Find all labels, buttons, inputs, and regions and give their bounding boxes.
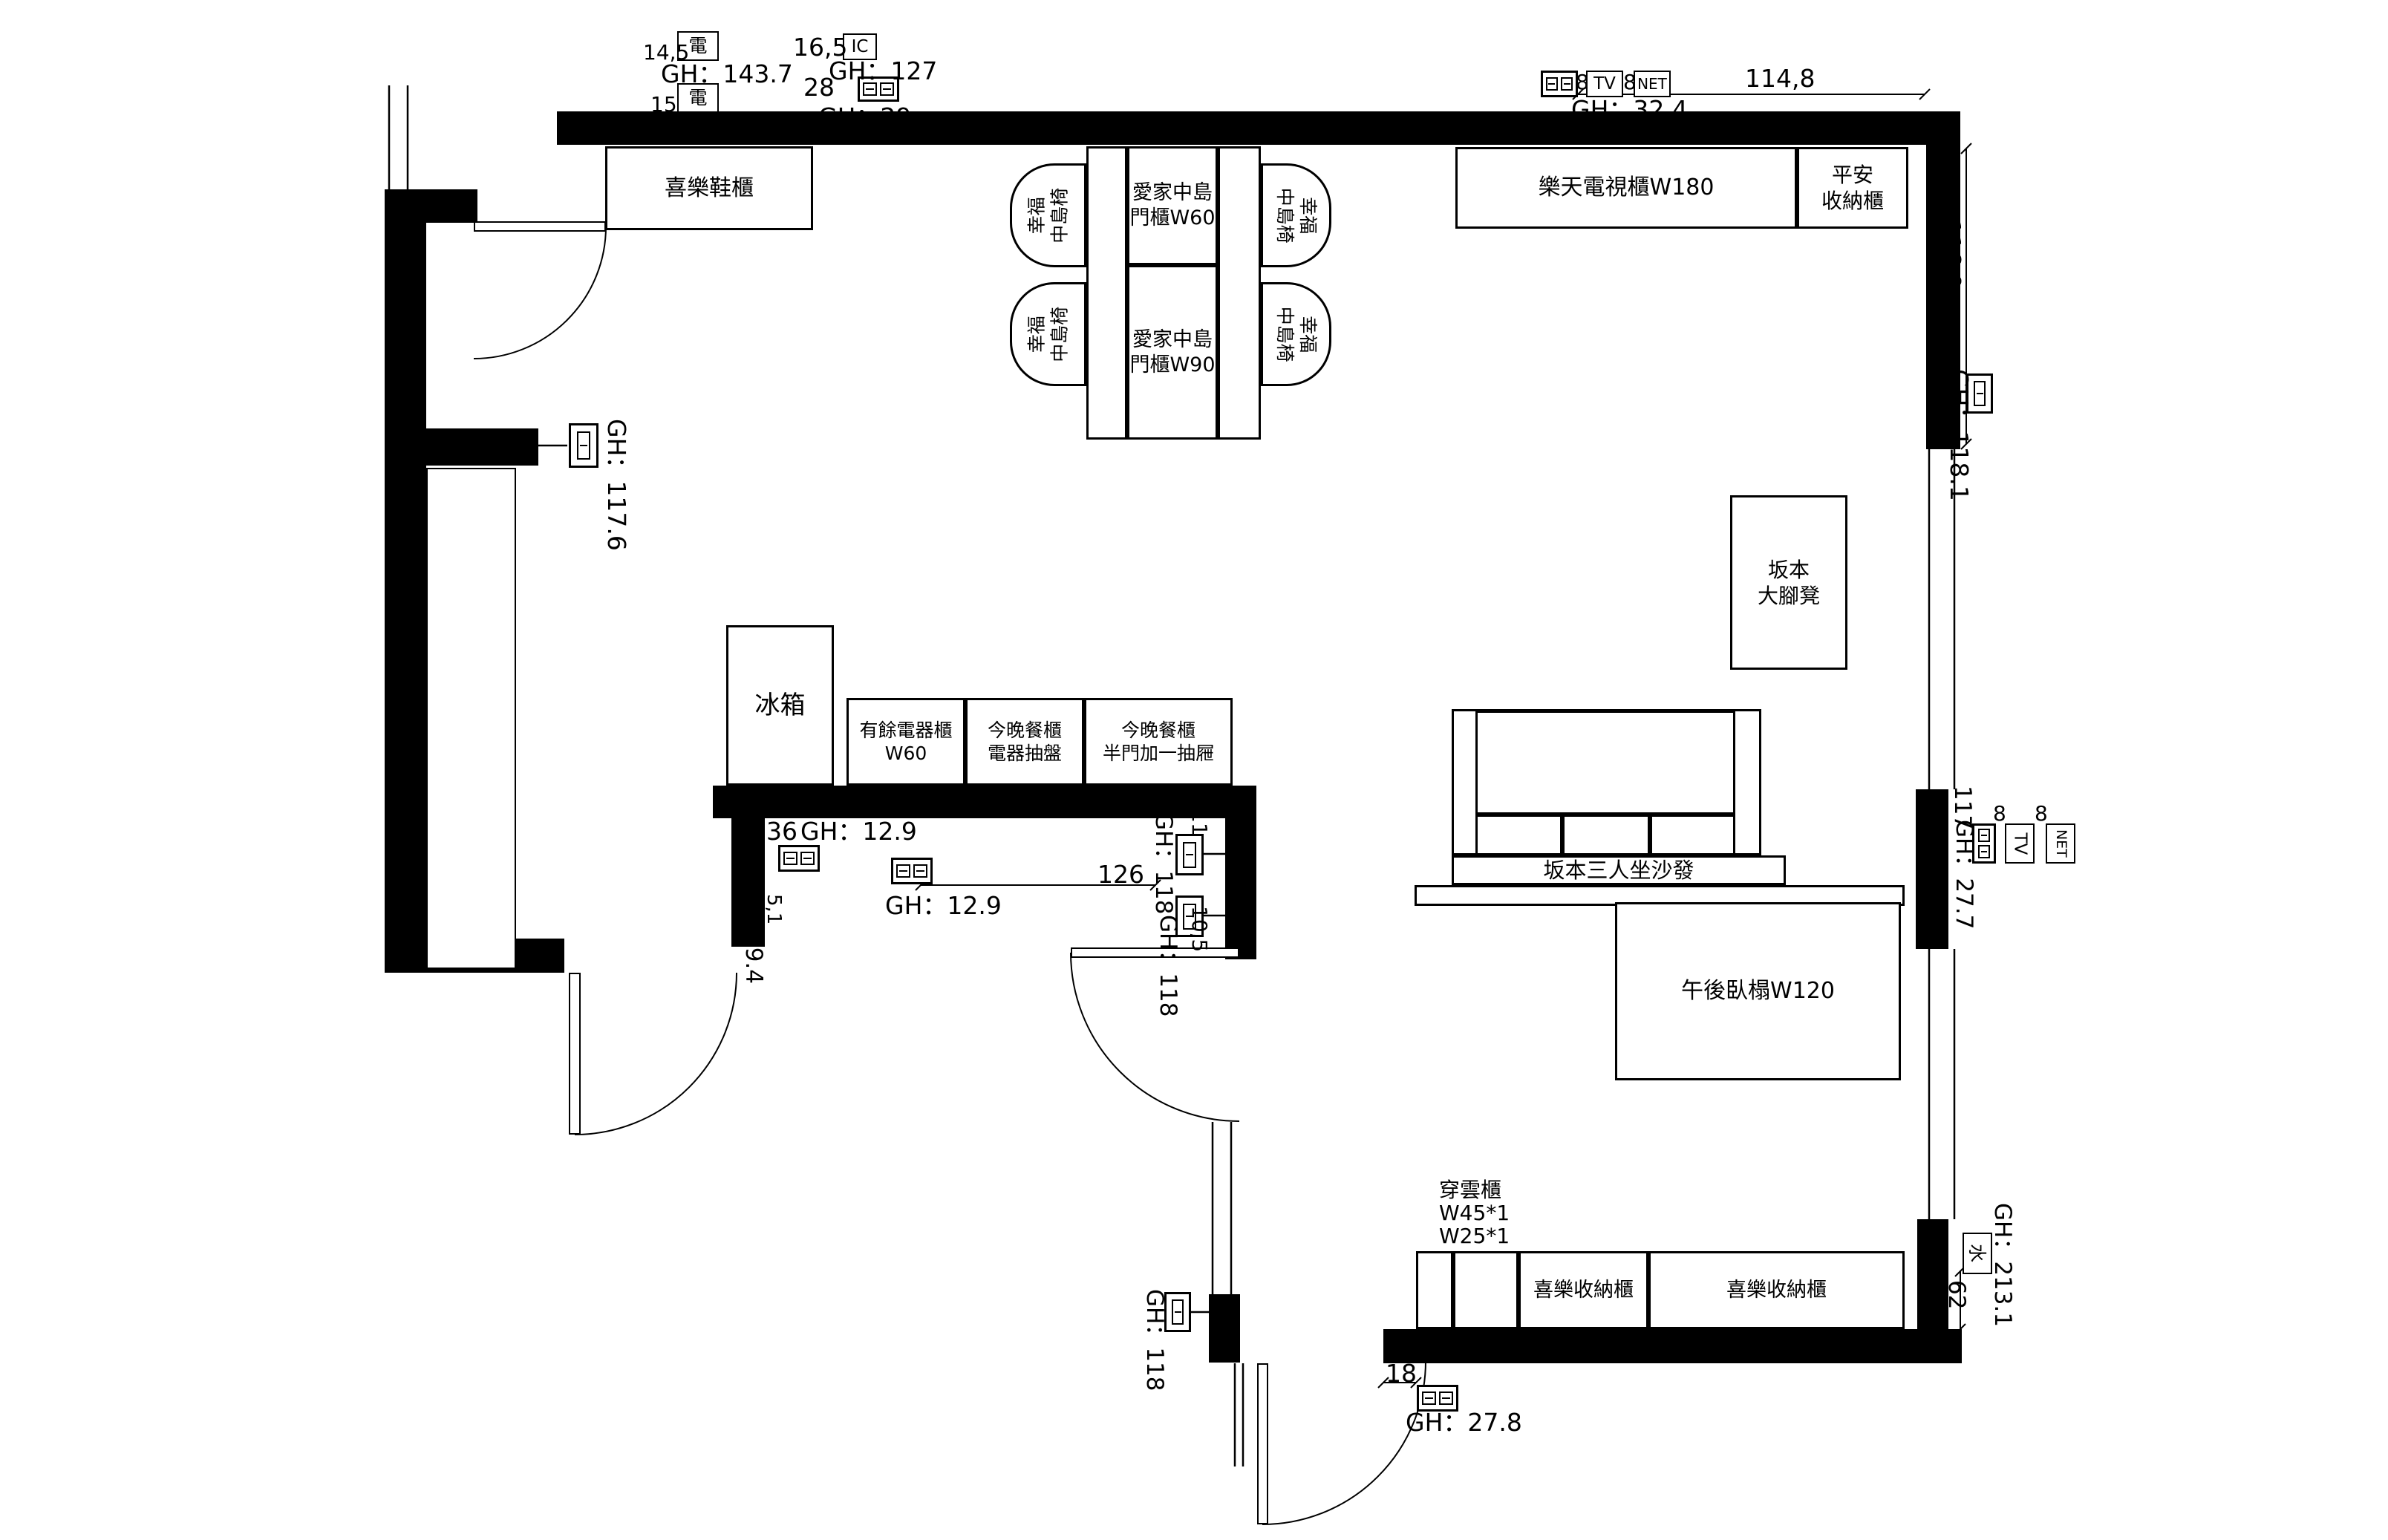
storage-cabinet-2-label: 喜樂收納櫃 bbox=[1726, 1278, 1827, 1303]
label-gh-117-6: GH：117.6 bbox=[603, 419, 630, 551]
wall-mid-pier bbox=[1225, 818, 1256, 959]
electric-box-2-label: 電 bbox=[688, 86, 707, 109]
daybed-label: 午後臥榻W120 bbox=[1681, 977, 1835, 1005]
label-gh-12-9b: GH：12.9 bbox=[885, 893, 1002, 919]
wall-bottom bbox=[1383, 1329, 1962, 1363]
socket-cell bbox=[1422, 1391, 1436, 1406]
socket-126-icon bbox=[891, 858, 933, 884]
net-outlet-box-top-label: NET bbox=[1637, 75, 1667, 94]
door-swing-arc-entry bbox=[474, 226, 606, 359]
island-cabinet-w60: 愛家中島 門櫃W60 bbox=[1127, 146, 1218, 265]
tv-cabinet-label: 樂天電視櫃W180 bbox=[1539, 174, 1715, 202]
tv-outlet-box-top: TV bbox=[1586, 71, 1623, 97]
socket-36-icon bbox=[778, 845, 820, 872]
socket-cell bbox=[1183, 842, 1196, 868]
socket-cell-bar bbox=[1564, 83, 1570, 85]
footstool-label: 坂本 大腳凳 bbox=[1758, 557, 1820, 609]
door-leaf-bottom bbox=[1257, 1363, 1268, 1524]
socket-cell-bar bbox=[1442, 1397, 1450, 1399]
socket-cell-bar bbox=[803, 858, 812, 859]
label-gh-118-a: GH：118 bbox=[1151, 812, 1176, 915]
tv-outlet-box-right-label: TV bbox=[2009, 832, 2031, 855]
label-gh-118-1: GH：118.1 bbox=[1945, 369, 1972, 501]
net-outlet-box-right-label: NET bbox=[2052, 829, 2069, 858]
label-gh-37-7: GH：37.7 bbox=[663, 113, 780, 140]
sofa-seat-2 bbox=[1562, 815, 1650, 855]
island-chair-left-top: 幸福 中島椅 bbox=[1010, 163, 1086, 267]
electric-box-1-label: 電 bbox=[688, 34, 707, 57]
dim-114-8: 114,8 bbox=[1745, 65, 1815, 92]
socket-cell-bar bbox=[1175, 1311, 1181, 1313]
dim-8b: 8 bbox=[1623, 71, 1637, 94]
bottom-cabinet-cell-1 bbox=[1416, 1251, 1453, 1329]
socket-top-right-icon bbox=[1541, 71, 1578, 97]
dim-8c: 8 bbox=[1993, 803, 2006, 826]
label-chuanyun-cabinet: 穿雲櫃 W45*1 W25*1 bbox=[1439, 1179, 1510, 1247]
island-cabinet-w90: 愛家中島 門櫃W90 bbox=[1127, 265, 1218, 440]
label-gh-143-7: GH：143.7 bbox=[661, 61, 793, 88]
island-cabinet-w60-label: 愛家中島 門櫃W60 bbox=[1129, 180, 1215, 231]
water-box: 水 bbox=[1963, 1233, 1992, 1274]
socket-cell-bar bbox=[580, 445, 588, 446]
socket-cell-bar bbox=[899, 870, 907, 872]
kitchen-cabinet-w60: 有餘電器櫃 W60 bbox=[846, 698, 965, 786]
wall-left-stub bbox=[385, 428, 538, 466]
island-chair-left-bottom: 幸福 中島椅 bbox=[1010, 282, 1086, 386]
ic-box-label: IC bbox=[852, 36, 869, 58]
dim-5-1: 5,1 bbox=[763, 894, 784, 924]
socket-cell-bar bbox=[1186, 854, 1193, 855]
socket-bottom-118-icon bbox=[1164, 1292, 1191, 1332]
shoe-cabinet-label: 喜樂鞋櫃 bbox=[665, 174, 754, 203]
socket-cell-bar bbox=[1425, 1397, 1433, 1399]
island-cabinet-w90-label: 愛家中島 門櫃W90 bbox=[1129, 327, 1215, 378]
socket-cell bbox=[896, 864, 910, 878]
label-gh-118-c: GH：118 bbox=[1142, 1289, 1167, 1391]
door-leaf-bottom-left bbox=[569, 973, 581, 1135]
footstool: 坂本 大腳凳 bbox=[1730, 495, 1847, 670]
storage-cabinet-1-label: 喜樂收納櫃 bbox=[1533, 1278, 1634, 1303]
island-chair-right-bottom-label: 幸福 中島椅 bbox=[1273, 306, 1319, 362]
sofa-backrest bbox=[1475, 711, 1735, 815]
storage-cabinet-2: 喜樂收納櫃 bbox=[1648, 1251, 1905, 1329]
socket-cell-bar bbox=[916, 870, 924, 872]
shoe-cabinet: 喜樂鞋櫃 bbox=[605, 146, 813, 230]
label-gh-213-1: GH：213.1 bbox=[1990, 1203, 2015, 1327]
net-outlet-box-top: NET bbox=[1634, 71, 1671, 97]
label-gh-29: GH：29 bbox=[818, 104, 911, 131]
tv-outlet-box-right: TV bbox=[2005, 823, 2035, 864]
island-chair-left-bottom-label: 幸福 中島椅 bbox=[1025, 306, 1071, 362]
water-box-label: 水 bbox=[1965, 1244, 1989, 1262]
wall-right-mid-pier bbox=[1916, 789, 1948, 949]
door-leaf-entry bbox=[474, 221, 606, 232]
socket-cell bbox=[1561, 77, 1573, 91]
closet bbox=[426, 468, 516, 969]
socket-cell-bar bbox=[883, 88, 891, 90]
dim-116-9: 116,9 bbox=[1938, 219, 1965, 289]
island-column-right bbox=[1218, 146, 1261, 440]
bottom-cabinet-cell-2 bbox=[1453, 1251, 1518, 1329]
storage-cabinet-1: 喜樂收納櫃 bbox=[1518, 1251, 1648, 1329]
fridge: 冰箱 bbox=[726, 625, 834, 786]
socket-cell-bar bbox=[1977, 393, 1983, 394]
socket-cell bbox=[1978, 845, 1990, 858]
socket-cell bbox=[913, 864, 927, 878]
label-gh-127: GH：127 bbox=[829, 58, 937, 85]
socket-cell bbox=[1974, 381, 1986, 406]
socket-cell-bar bbox=[1981, 835, 1988, 836]
socket-cell-bar bbox=[1981, 851, 1988, 852]
fridge-label: 冰箱 bbox=[755, 690, 806, 722]
dim-28: 28 bbox=[803, 74, 835, 101]
kitchen-cabinet-halfdoor-label: 今晚餐櫃 半門加一抽屜 bbox=[1103, 719, 1214, 766]
label-gh-27-8: GH：27.8 bbox=[1406, 1409, 1522, 1436]
socket-cell bbox=[783, 852, 797, 866]
socket-cell bbox=[800, 852, 815, 866]
kitchen-cabinet-halfdoor: 今晚餐櫃 半門加一抽屜 bbox=[1084, 698, 1233, 786]
dim-36: 36 bbox=[766, 818, 797, 845]
tv-cabinet: 樂天電視櫃W180 bbox=[1455, 147, 1797, 229]
pingan-storage-cabinet: 平安 收納櫃 bbox=[1797, 147, 1908, 229]
socket-left-117-icon bbox=[569, 423, 598, 468]
dim-126: 126 bbox=[1097, 861, 1144, 888]
kitchen-cabinet-drawer: 今晚餐櫃 電器抽盤 bbox=[965, 698, 1084, 786]
daybed: 午後臥榻W120 bbox=[1615, 902, 1901, 1080]
wall-mid-lower-pier bbox=[1209, 1294, 1240, 1363]
sofa-label-strip: 坂本三人坐沙發 bbox=[1452, 855, 1786, 885]
label-gh-118-b: GH：118 bbox=[1155, 915, 1181, 1017]
socket-cell-bar bbox=[1548, 83, 1555, 85]
socket-cell bbox=[1172, 1299, 1184, 1325]
socket-cell bbox=[577, 431, 591, 460]
floor-plan-canvas: 喜樂鞋櫃愛家中島 門櫃W60愛家中島 門櫃W90幸福 中島椅幸福 中島椅幸福 中… bbox=[0, 0, 2388, 1540]
island-chair-right-top-label: 幸福 中島椅 bbox=[1273, 187, 1319, 243]
net-outlet-box-right: NET bbox=[2046, 823, 2075, 864]
socket-cell-bar bbox=[866, 88, 874, 90]
dim-8a: 8 bbox=[1576, 71, 1589, 94]
island-column-left bbox=[1086, 146, 1127, 440]
kitchen-cabinet-drawer-label: 今晚餐櫃 電器抽盤 bbox=[988, 719, 1062, 766]
dim-18: 18 bbox=[1386, 1360, 1417, 1387]
kitchen-cabinet-w60-label: 有餘電器櫃 W60 bbox=[859, 719, 952, 766]
island-chair-left-top-label: 幸福 中島椅 bbox=[1025, 187, 1071, 243]
dim-62: 62 bbox=[1944, 1280, 1969, 1309]
pingan-storage-cabinet-label: 平安 收納櫃 bbox=[1821, 162, 1884, 214]
sofa-seat-1 bbox=[1475, 815, 1562, 855]
dim-11: 11 bbox=[1187, 809, 1210, 836]
socket-cell bbox=[1546, 77, 1559, 91]
dim-8d: 8 bbox=[2035, 803, 2048, 826]
tv-outlet-box-top-label: TV bbox=[1593, 74, 1616, 95]
label-gh-12-9a: GH：12.9 bbox=[800, 818, 917, 845]
socket-cell-bar bbox=[786, 858, 795, 859]
sofa-label-strip-label: 坂本三人坐沙發 bbox=[1543, 857, 1694, 884]
socket-cell bbox=[1978, 829, 1990, 842]
dim-10-5: 10,5 bbox=[1187, 906, 1210, 952]
wall-left bbox=[385, 214, 426, 973]
label-gh-27-7: GH：27.7 bbox=[1951, 820, 1977, 929]
door-swing-arc-bottom-left bbox=[575, 973, 737, 1135]
socket-kitchen-1-icon bbox=[1175, 834, 1204, 875]
sofa-seat-3 bbox=[1650, 815, 1735, 855]
label-gh-32-4: GH：32.4 bbox=[1571, 97, 1688, 123]
socket-cell bbox=[1439, 1391, 1453, 1406]
